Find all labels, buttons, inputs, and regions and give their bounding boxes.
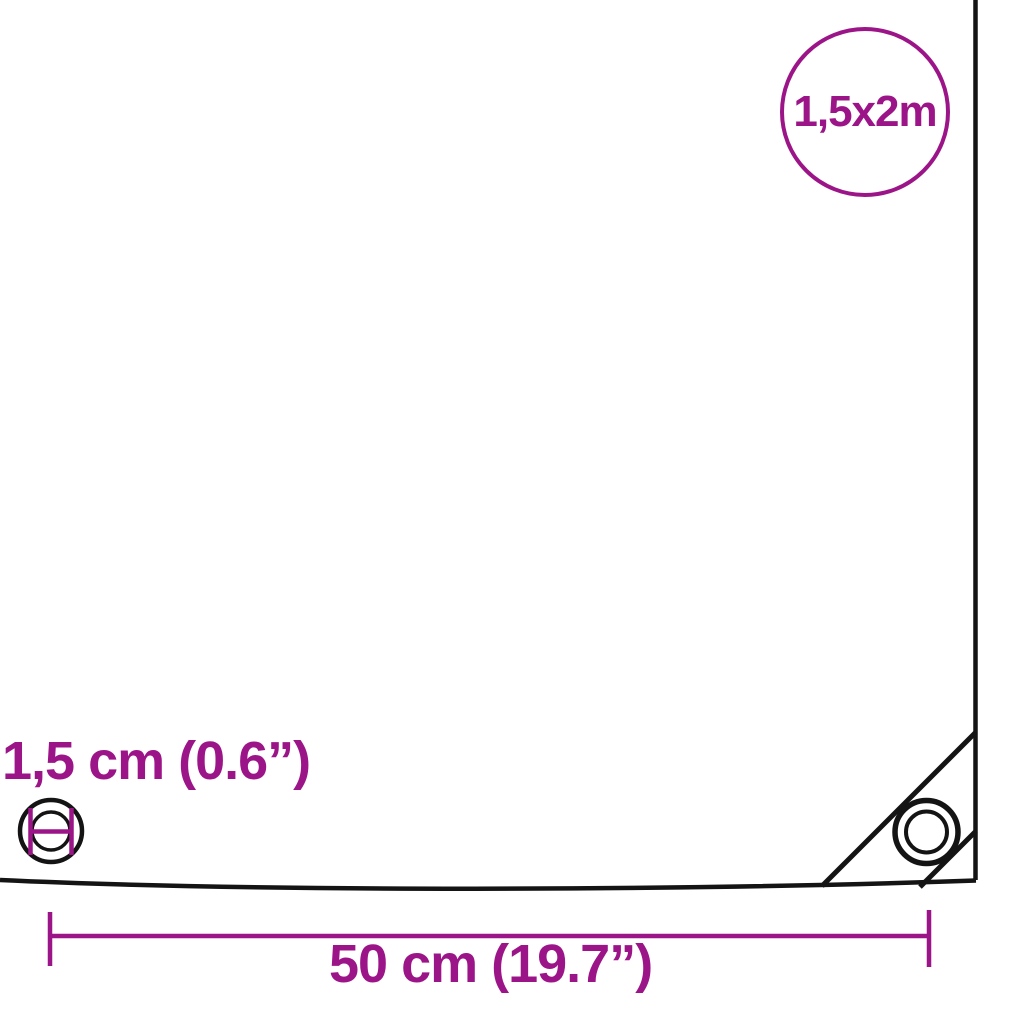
- size-badge-label: 1,5x2m: [793, 87, 936, 138]
- eyelet-size-label: 1,5 cm (0.6”): [2, 734, 310, 788]
- tarpaulin-size-diagram: 1,5x2m 1,5 cm (0.6”) 50 cm (19.7”): [0, 0, 1024, 1024]
- corner-grommet-inner-ring: [906, 812, 947, 853]
- corner-seam-line: [822, 732, 976, 886]
- width-size-label: 50 cm (19.7”): [329, 937, 652, 991]
- corner-grommet-icon: [895, 801, 958, 864]
- eyelet-measure-icon: [20, 800, 82, 862]
- size-badge: 1,5x2m: [780, 27, 950, 197]
